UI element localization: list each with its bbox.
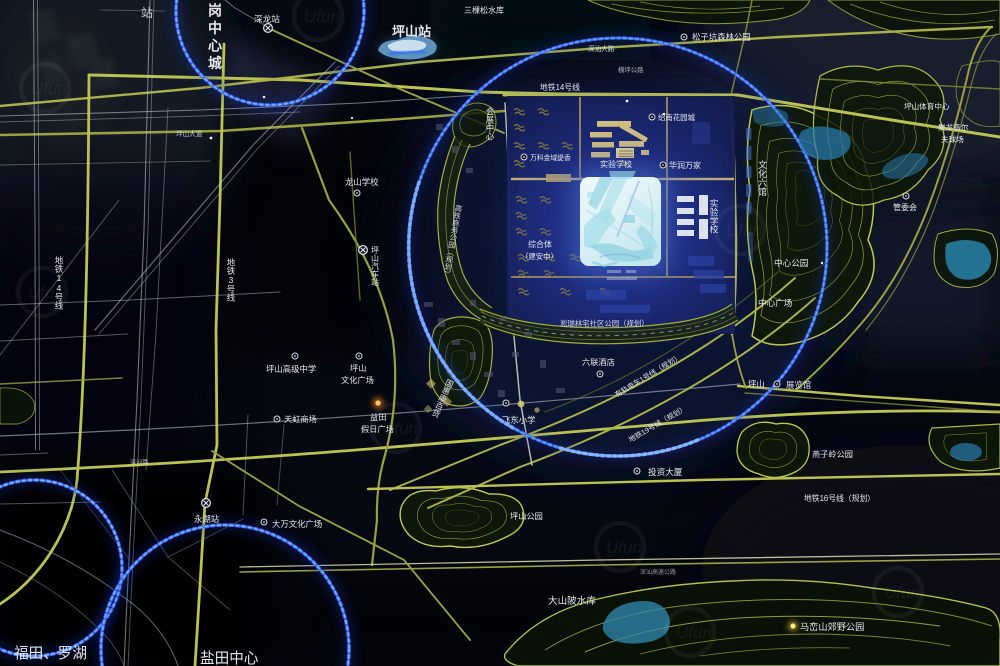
svg-text:文化六馆: 文化六馆 — [757, 159, 767, 197]
svg-text:马峦山郊野公园: 马峦山郊野公园 — [800, 621, 864, 632]
svg-text:管委会: 管委会 — [893, 202, 917, 212]
svg-text:坪山: 坪山 — [748, 379, 765, 389]
svg-text:（建安中）: （建安中） — [521, 252, 558, 261]
svg-text:坪山公园: 坪山公园 — [510, 511, 543, 521]
svg-text:淞瑞林宅社区公园（规划）: 淞瑞林宅社区公园（规划） — [560, 319, 649, 328]
svg-text:燕子岭公园: 燕子岭公园 — [812, 449, 853, 459]
svg-text:坪山: 坪山 — [350, 363, 366, 373]
svg-text:夫球场: 夫球场 — [941, 134, 964, 144]
svg-text:福田、罗湖: 福田、罗湖 — [14, 645, 87, 662]
svg-text:三棵松水库: 三棵松水库 — [464, 5, 504, 15]
svg-text:中心公园: 中心公园 — [774, 257, 808, 268]
svg-text:岗中心城: 岗中心城 — [207, 2, 223, 73]
svg-text:六联酒店: 六联酒店 — [582, 357, 615, 367]
svg-text:盐田中心: 盐田中心 — [200, 650, 259, 666]
svg-text:松子坑森林公园: 松子坑森林公园 — [692, 32, 751, 42]
svg-text:深龙站: 深龙站 — [254, 13, 280, 24]
svg-text:地铁16号线（规划）: 地铁16号线（规划） — [804, 493, 875, 503]
svg-text:展览馆: 展览馆 — [786, 380, 811, 390]
svg-text:坪山高级中学: 坪山高级中学 — [266, 364, 316, 374]
svg-text:深汕高速公路: 深汕高速公路 — [640, 568, 676, 576]
svg-text:坪山大道: 坪山大道 — [176, 129, 203, 138]
svg-text:聚龙高尔: 聚龙高尔 — [938, 122, 969, 132]
svg-text:飞东小学: 飞东小学 — [502, 415, 536, 425]
svg-text:龙山学校: 龙山学校 — [345, 177, 379, 187]
svg-text:深汕路: 深汕路 — [130, 458, 150, 467]
svg-text:横坪公路: 横坪公路 — [618, 65, 644, 74]
svg-text:会展中心: 会展中心 — [485, 106, 495, 140]
svg-text:投资大厦: 投资大厦 — [648, 466, 683, 477]
svg-text:中心广场: 中心广场 — [758, 297, 793, 308]
svg-text:地铁14号线: 地铁14号线 — [540, 82, 580, 92]
svg-text:万科金域缇香: 万科金域缇香 — [530, 153, 571, 162]
svg-text:坪山站: 坪山站 — [392, 24, 431, 39]
svg-text:文化广场: 文化广场 — [341, 375, 374, 385]
svg-text:实验学校: 实验学校 — [600, 159, 632, 169]
svg-text:华润万家: 华润万家 — [669, 160, 701, 170]
svg-text:坪山体育中心: 坪山体育中心 — [904, 101, 950, 111]
svg-text:天虹商场: 天虹商场 — [284, 414, 317, 424]
svg-text:大万文化广场: 大万文化广场 — [272, 519, 322, 529]
svg-text:综合体: 综合体 — [528, 239, 552, 249]
svg-text:坪山汽车站: 坪山汽车站 — [371, 246, 380, 287]
svg-text:站: 站 — [141, 6, 153, 20]
svg-text:永湖站: 永湖站 — [194, 514, 220, 524]
svg-text:深汕大路: 深汕大路 — [588, 44, 615, 53]
svg-text:大山陂水库: 大山陂水库 — [548, 595, 596, 607]
svg-text:地铁3号线: 地铁3号线 — [226, 257, 236, 301]
